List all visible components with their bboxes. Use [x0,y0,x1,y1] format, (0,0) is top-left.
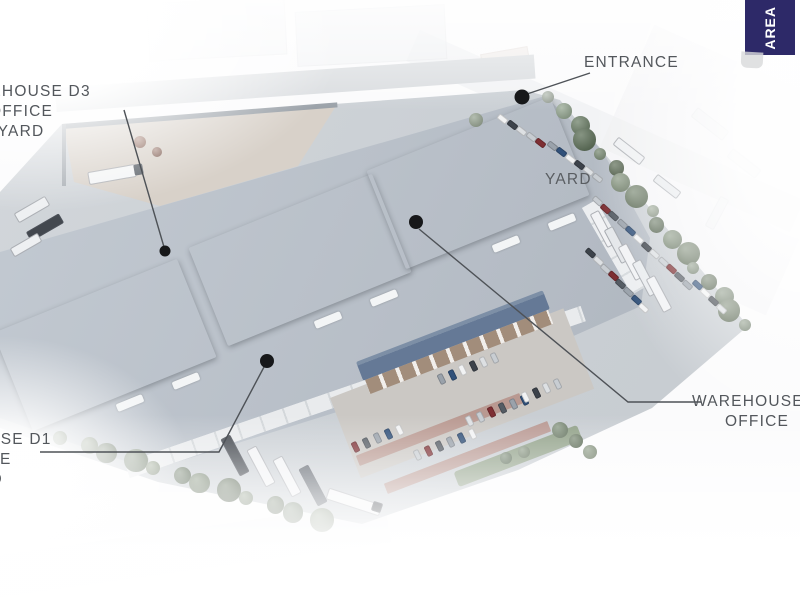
faint-truck [691,107,730,141]
callout-line: WAREHOUSE D2 [692,392,800,412]
truck-trailer [87,164,137,185]
tree [573,128,596,151]
roof-vent [172,372,201,390]
parked-car [456,432,466,445]
parked-car [497,402,507,415]
parked-car [541,382,551,395]
truck-trailer [220,434,249,476]
parked-car [489,351,499,364]
parked-car [383,428,393,441]
tree [189,473,209,493]
truck-trailer [246,445,275,487]
roof-vent [314,311,343,329]
tree [217,478,241,502]
callout-line: YARD [0,122,101,142]
parked-car [552,378,562,391]
tree [625,185,648,208]
roof-vent [370,289,399,307]
parked-car [467,427,477,440]
parked-car [434,440,444,453]
truck-trailer [10,233,43,258]
parked-car [394,424,404,437]
parked-car [508,398,518,411]
tree [96,443,116,463]
tree [649,217,665,233]
callout-warehouse-d1: WAREHOUSE D1 OFFICE YARD [0,430,47,490]
tree [518,446,530,458]
tree [53,431,67,445]
callout-warehouse-d3: WAREHOUSE D3 OFFICE YARD [0,82,101,142]
callout-line: YARD [0,470,47,490]
roof-vent [116,394,145,412]
area-banner-label: AREA [762,6,778,50]
truck-trailer [298,464,327,506]
callout-line: WAREHOUSE D3 [0,82,101,102]
tree [583,445,597,459]
tree [239,491,253,505]
parked-car [361,436,371,449]
tree [267,496,284,513]
parked-car [591,172,603,184]
tree [542,91,554,103]
banner-card-corner [741,51,764,68]
truck-trailer [133,163,144,175]
tree [647,205,659,217]
tree [310,508,334,532]
callout-line: OFFICE [0,102,101,122]
faint-truck [726,148,761,179]
scenery-layer [0,0,800,600]
parked-car [531,386,541,399]
truck-trailer [652,174,681,200]
tree [469,113,483,127]
tree [687,262,699,274]
parked-car [457,364,467,377]
site-plan-render: WAREHOUSE D3 OFFICE YARD WAREHOUSE D1 OF… [0,0,800,600]
tree [594,148,606,160]
parked-car [350,441,360,454]
tree [174,467,191,484]
tree [552,422,568,438]
faint-truck [705,196,730,231]
roof-vent [548,213,577,231]
tree [81,437,98,454]
tree [569,434,583,448]
parked-car [447,368,457,381]
tree [124,449,148,473]
tree [146,461,160,475]
parked-car [486,406,496,419]
callout-line: OFFICE [0,450,47,470]
parked-car [478,356,488,369]
parked-car [423,444,433,457]
tree [556,103,572,119]
parked-car [445,436,455,449]
parked-car [372,432,382,445]
callout-line: WAREHOUSE D1 [0,430,47,450]
callout-warehouse-d2: WAREHOUSE D2 OFFICE [692,392,800,432]
truck-trailer [272,455,301,497]
tree [283,502,303,522]
truck-trailer [14,196,51,224]
area-banner: AREA [745,0,795,55]
label-yard: YARD [545,170,592,190]
tree [134,136,146,148]
parked-car [468,360,478,373]
callout-line: OFFICE [692,412,800,432]
callout-entrance: ENTRANCE [584,53,679,73]
parked-car [475,410,485,423]
tree [500,452,512,464]
parked-car [534,137,546,149]
parked-car [412,449,422,462]
tree [152,147,162,157]
parked-car [638,302,650,314]
parked-car [436,373,446,386]
parked-car [464,415,474,428]
tree [739,319,751,331]
roof-vent [492,235,521,253]
tree [677,242,700,265]
